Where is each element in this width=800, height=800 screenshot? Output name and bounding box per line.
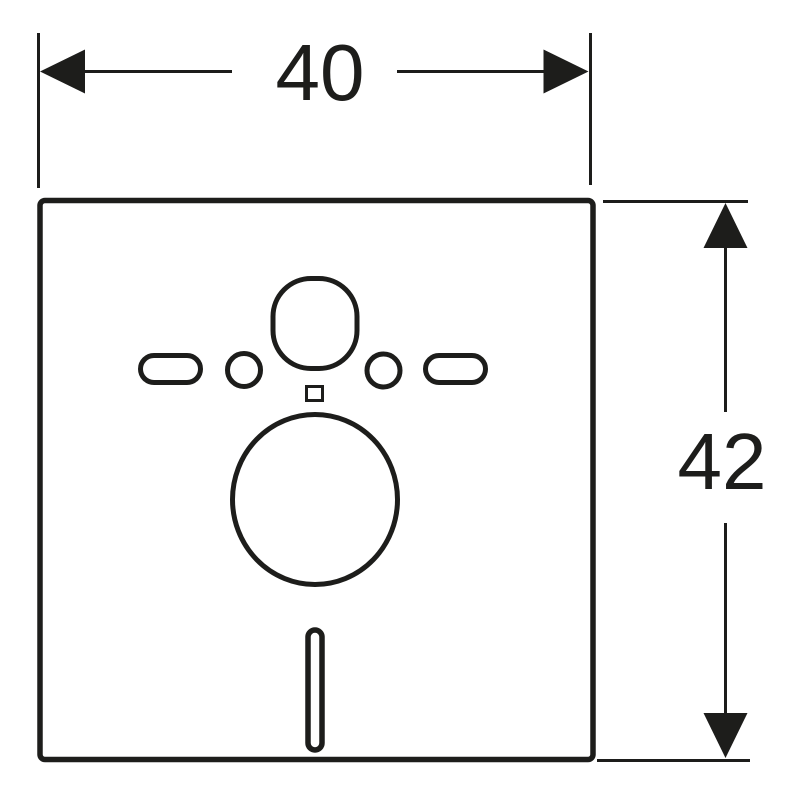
height-dimension-label: 42: [678, 417, 767, 506]
plate-outline: [40, 201, 593, 760]
top-oval-cutout: [273, 279, 357, 369]
arrowhead-up-icon: [704, 203, 748, 248]
technical-drawing: 40 42: [0, 0, 800, 800]
left-hole-cutout: [228, 354, 261, 387]
bottom-slot-cutout: [308, 630, 322, 750]
drawing-svg: 40 42: [0, 0, 800, 800]
plate: [40, 201, 593, 760]
height-dimension: 42: [597, 202, 766, 761]
right-hole-cutout: [367, 354, 400, 387]
left-slot-cutout: [141, 356, 201, 383]
arrowhead-right-icon: [544, 50, 589, 94]
arrowhead-left-icon: [40, 50, 85, 94]
width-dimension: 40: [39, 28, 591, 188]
width-dimension-label: 40: [276, 28, 365, 117]
square-cutout: [307, 387, 323, 401]
large-hole-cutout: [233, 415, 398, 585]
right-slot-cutout: [426, 356, 486, 383]
arrowhead-down-icon: [704, 713, 748, 758]
